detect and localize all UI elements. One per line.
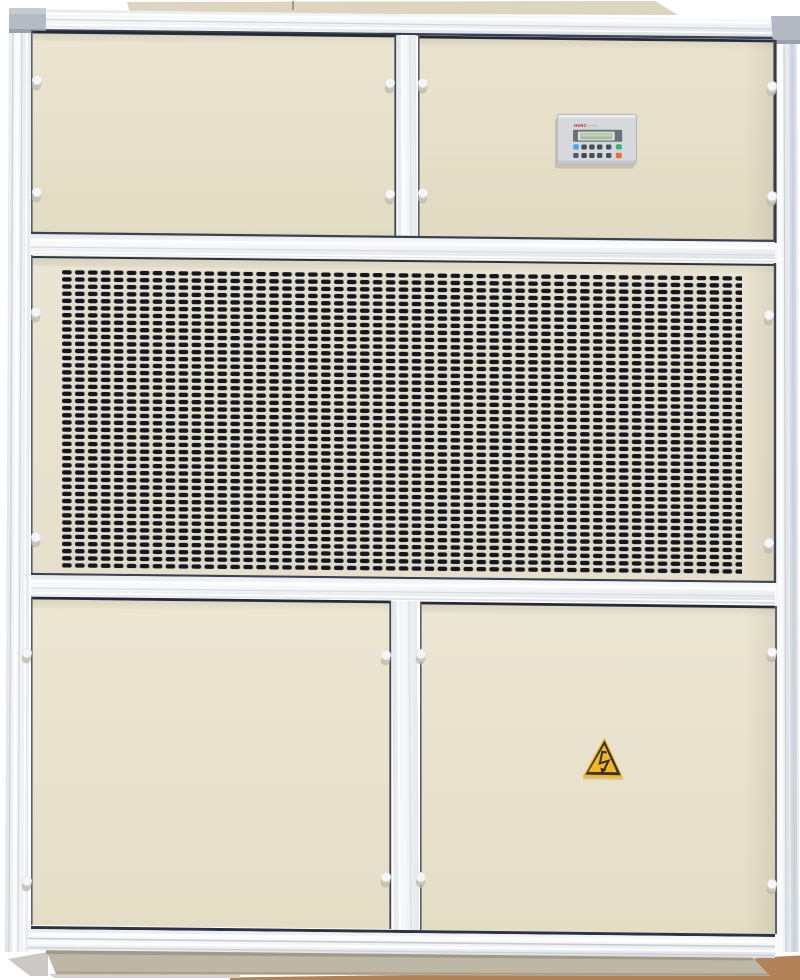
svg-text:HVAC: HVAC [574,123,587,128]
svg-text:controller: controller [587,124,598,128]
